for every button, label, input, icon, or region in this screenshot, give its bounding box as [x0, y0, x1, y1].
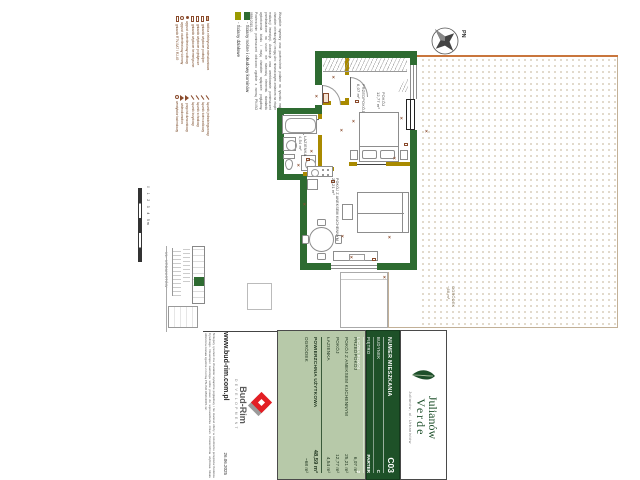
legend-item: gniazdo RTV-SAT / RJ-45	[174, 16, 179, 94]
chair	[317, 219, 326, 226]
compass-north-label: PN	[456, 30, 466, 46]
socket-single-icon	[196, 16, 199, 22]
legend-item: wypust oświetleniowy ścienny	[179, 16, 184, 94]
table-row: POKÓJ Z ANEKSEM KUCHENNYM25,21 m²	[342, 337, 351, 473]
wall-segment	[300, 174, 307, 270]
partition-wall	[349, 162, 357, 166]
window-frame	[331, 268, 377, 269]
legend-item: wideodomofon	[179, 95, 184, 215]
legend-item: łącznik świecznikowy	[200, 95, 205, 215]
socket-mark: ×	[303, 203, 306, 208]
switch2-icon	[201, 95, 205, 100]
legend-wall-partition: - Ściany działowe	[234, 12, 243, 120]
socket-mark: ×	[400, 117, 403, 122]
partition-wall	[340, 101, 349, 105]
room-label-bedroom: POKÓJ12,77 m²	[374, 92, 385, 136]
coffee-table	[342, 204, 353, 220]
site-parking-row	[183, 248, 190, 282]
floorplan-sheet: - Ściany nośne i obudowy kominów - Ścian…	[0, 0, 640, 480]
site-building-outline	[192, 246, 205, 304]
table-row: POKÓJ12,77 m²	[333, 337, 342, 473]
sofa	[357, 192, 409, 233]
apartment-number-row: NUMER MIESZKANIA C03	[383, 337, 396, 473]
wall-segment	[410, 130, 417, 263]
ceiling-light-icon	[186, 16, 189, 19]
socket-mark: ×	[310, 150, 313, 155]
garden-boundary-bottom	[388, 327, 618, 328]
legend-item: gniazdo wtykowe hermetyczne	[190, 16, 195, 94]
wall-segment	[377, 263, 417, 270]
panel-symbol-icon	[206, 16, 209, 21]
wall-segment	[410, 58, 417, 65]
legend-item: łącznik jednobiegunowy	[205, 95, 210, 215]
legend-item: gniazdo wtykowe pojedyncze	[195, 16, 200, 94]
legend-item: przycisk dzwonkowy	[184, 95, 189, 215]
socket-mark: ×	[393, 157, 396, 162]
brand-line1: Julianów	[427, 391, 439, 444]
wall-light-icon	[180, 16, 184, 20]
chair	[317, 253, 326, 260]
corner-wardrobe	[396, 76, 408, 92]
balcony-door	[406, 99, 415, 130]
socket-sealed-icon	[191, 16, 194, 22]
field-row: BUDYNEKC	[373, 337, 383, 473]
switch-symbols-legend: łącznik jednobiegunowy łącznik świecznik…	[158, 95, 210, 215]
site-parking-row	[172, 248, 181, 296]
budrim-logo-block: Bud-Rim DEVELOPMENT	[230, 332, 275, 478]
wall-segment	[305, 263, 331, 270]
rtv-socket-icon	[176, 16, 179, 22]
socket-mark: ×	[332, 76, 335, 81]
room-label-living: POKÓJ Z ANEKSEM KUCHENNYM25,21 m²	[327, 178, 339, 240]
budrim-logo-icon	[247, 392, 271, 418]
intercom-icon	[180, 95, 184, 101]
garden-boundary-right	[617, 57, 618, 328]
garden-label: OGRÓDEK~68 m²	[443, 286, 455, 328]
bell-button-icon	[185, 95, 189, 101]
legend-item: wentylator łazienkowy	[174, 95, 179, 215]
site-unit-highlight	[194, 277, 204, 286]
room-label-hall: PRZEDPOKÓJ6,07 m²	[354, 84, 365, 132]
stair-switch-icon	[196, 95, 200, 100]
legend-item: tablica elektryczna mieszkaniowa	[205, 16, 210, 94]
legend-item: gniazdo wtykowe podwójne	[200, 16, 205, 94]
legend-note: Wszystkie wymiary oraz powierzchnie poda…	[252, 12, 282, 110]
field-row: LICZBA POKOI2	[354, 337, 363, 473]
bathtub	[282, 115, 317, 134]
partition-wall	[386, 162, 410, 166]
socket-icon	[404, 143, 408, 146]
terrace	[340, 272, 388, 328]
field-row: PIĘTROPARTER	[363, 337, 373, 473]
titleblock-disclaimer: Niniejszy rysunek ma charakter wyłącznie…	[204, 333, 215, 478]
fan-icon	[175, 95, 179, 99]
apartment-number: C03	[386, 457, 396, 473]
socket-mark: ×	[341, 235, 344, 240]
electrical-symbols-legend: tablica elektryczna mieszkaniowa gniazdo…	[158, 16, 210, 94]
wardrobe	[323, 58, 407, 72]
window-frame	[413, 65, 414, 99]
brand-subtitle: Julianów, ul. Urbanistów	[408, 391, 412, 444]
window-frame	[331, 265, 377, 266]
developer-url: www.bud-rim.com.pl	[222, 332, 229, 401]
legend-item: łącznik krzyżowy	[190, 95, 195, 215]
neighbour-terrace	[247, 283, 272, 310]
street-label: UL. URBANISTÓW	[160, 252, 168, 312]
socket-mark: ×	[425, 130, 428, 135]
budrim-tagline: DEVELOPMENT	[234, 379, 238, 431]
wall-segment	[315, 51, 322, 85]
socket-icon	[372, 258, 376, 261]
window-frame	[410, 65, 411, 99]
sliding-door	[357, 164, 386, 165]
washbasin	[283, 137, 296, 151]
table-row: ŁAZIENKA4,54 m²	[324, 337, 333, 473]
bedroom-door-leaf	[350, 77, 351, 97]
scale-ticks: 0 1 2 3 4 5 m	[142, 186, 150, 264]
table-row-garden: OGRÓDEK~68 m²	[302, 337, 311, 473]
switch-icon	[206, 95, 210, 100]
bed-pillow	[362, 150, 377, 159]
electrical-panel	[323, 93, 329, 103]
site-road-line	[166, 246, 167, 332]
developer-url-row: www.bud-rim.com.pl 26.06.2025	[216, 332, 229, 478]
site-building-outline	[168, 306, 198, 328]
kitchen-counter	[307, 166, 333, 177]
socket-double-icon	[201, 16, 204, 22]
socket-mark: ×	[388, 236, 391, 241]
leaf-icon	[411, 366, 437, 386]
legend-item: łącznik schodowy	[195, 95, 200, 215]
wall-segment	[317, 51, 417, 58]
socket-mark: ×	[315, 95, 318, 100]
nightstand	[400, 150, 408, 160]
socket-mark: ×	[383, 276, 386, 281]
socket-mark: ×	[350, 256, 353, 261]
garden-boundary-left	[388, 272, 389, 328]
legend-item: wypust oświetleniowy sufitowy	[184, 16, 189, 94]
bed-blanket-line	[359, 146, 399, 147]
room-label-bathroom: ŁAZIENKA4,54 m²	[296, 136, 307, 180]
budrim-name: Bud-Rim	[238, 386, 248, 424]
apartment-panel-content: NUMER MIESZKANIA C03 BUDYNEKC PIĘTROPART…	[368, 332, 398, 478]
chair	[302, 235, 309, 244]
cross-switch-icon	[191, 95, 195, 100]
window-frame	[416, 65, 417, 99]
brand-logo-block: Julianów Verde Julianów, ul. Urbanistów	[402, 332, 445, 478]
table-row-total: POWIERZCHNIA UŻYTKOWA 48,59 m²	[311, 337, 323, 473]
toilet-bowl	[285, 159, 293, 170]
brand-line2: Verde	[414, 391, 427, 444]
nightstand	[350, 150, 358, 160]
fridge	[307, 179, 318, 190]
socket-mark: ×	[340, 129, 343, 134]
print-date: 26.06.2025	[223, 452, 228, 475]
partition-swatch	[235, 12, 241, 20]
